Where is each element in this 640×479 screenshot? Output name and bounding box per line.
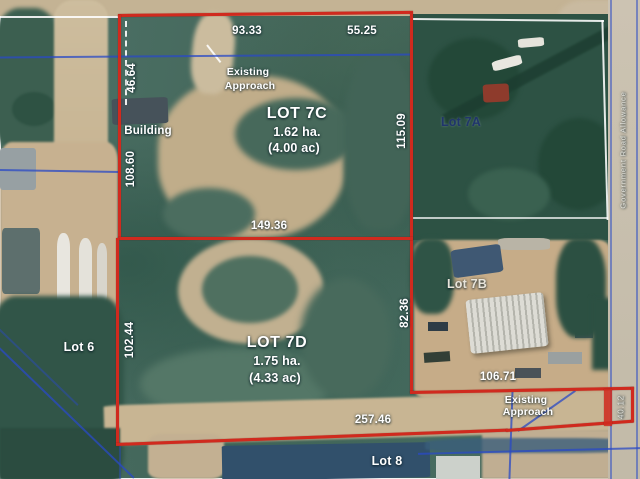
measure-north-east: 55.25 — [347, 25, 377, 37]
measure-west-building: 108.60 — [125, 151, 137, 187]
boundary-east-vertical — [410, 13, 413, 393]
measure-east-edge: 40.12 — [617, 395, 626, 419]
lot7b-label: Lot 7B — [447, 277, 487, 291]
boundary-7d-west — [116, 238, 119, 445]
yard-building-dark — [2, 228, 40, 294]
measure-divider: 149.36 — [251, 220, 287, 232]
building-label: Building — [124, 125, 172, 137]
lot7d-area-ha: 1.75 ha. — [253, 354, 300, 368]
measure-south-7d: 257.46 — [355, 414, 391, 426]
lot7d-area-ac: (4.33 ac) — [249, 371, 301, 385]
lot7b-vehicle-2 — [424, 351, 451, 363]
corner-stub-line — [119, 446, 121, 479]
aerial-parcel-map: 93.33 55.25 46.64 Existing Approach Buil… — [0, 0, 640, 479]
lot7c-area-ha: 1.62 ha. — [273, 125, 320, 139]
measure-north-west: 93.33 — [232, 25, 262, 37]
fence-line-top-left — [0, 16, 119, 18]
left-tree-clump — [12, 92, 56, 126]
measure-west-north: 46.64 — [126, 63, 138, 93]
lot7d-mottle-2 — [300, 278, 392, 400]
lot7b-truck-row — [498, 238, 550, 250]
lot7d-clearing-center — [202, 256, 298, 323]
lot7d-title: LOT 7D — [247, 334, 308, 352]
measure-west-7d: 102.44 — [124, 322, 136, 358]
boundary-divider — [118, 237, 413, 240]
approach-marker-bar — [604, 389, 612, 426]
lot7c-title: LOT 7C — [267, 105, 328, 123]
lot8-label: Lot 8 — [372, 454, 403, 468]
lot7c-green-mottle-2 — [163, 188, 255, 240]
bottom-left-trees — [0, 428, 120, 479]
existing-approach-bottom-line1: Existing — [505, 394, 547, 406]
measure-east-7c: 115.09 — [396, 113, 408, 149]
lot7b-vehicle-1 — [428, 322, 448, 331]
lot7b-vehicle-5 — [515, 368, 541, 378]
existing-approach-bottom-line2: Approach — [503, 406, 554, 418]
measure-east-7d: 82.36 — [399, 298, 411, 328]
measure-south-east: 106.71 — [480, 371, 516, 383]
lot7c-area-ac: (4.00 ac) — [268, 141, 320, 155]
road-allowance-label: Government Road Allowance — [619, 91, 628, 208]
bottom-white-building — [436, 456, 480, 479]
boundary-7c-west — [118, 15, 121, 239]
existing-approach-top-line1: Existing — [227, 66, 269, 78]
lot7b-vehicle-3 — [548, 352, 582, 364]
red-barn — [483, 83, 510, 102]
lot7b-trees-left — [410, 238, 454, 314]
allowance-line-east — [636, 0, 638, 479]
lot7b-white-barn — [465, 292, 548, 354]
fence-line-7b-north — [412, 217, 608, 219]
lot7a-label: Lot 7A — [441, 115, 481, 129]
existing-approach-top-line2: Approach — [225, 80, 276, 92]
lot6-label: Lot 6 — [64, 340, 95, 354]
boundary-approach-east — [631, 387, 634, 422]
lot7a-forest-light — [468, 168, 550, 220]
